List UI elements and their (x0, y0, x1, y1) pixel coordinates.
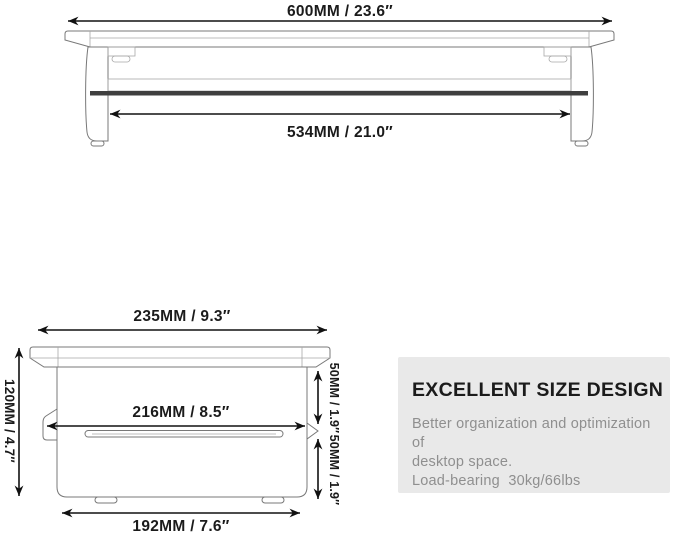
dimension-label-534: 534MM / 21.0″ (287, 124, 393, 141)
front-view-drawing: 600MM / 23.6″ 534MM / 21.0″ (65, 3, 614, 146)
dimension-label-192: 192MM / 7.6″ (132, 518, 229, 535)
front-left-bracket (108, 47, 135, 56)
front-right-foot (575, 141, 588, 146)
dimension-120mm: 120MM / 4.7″ (2, 348, 19, 496)
dimension-label-50-lower: 50MM / 1.9″ (327, 435, 341, 506)
panel-text-line: Better organization and optimization of (412, 415, 656, 453)
panel-body: Better organization and optimization of … (412, 415, 656, 491)
side-right-hook (307, 423, 318, 439)
front-right-bracket-tab (549, 56, 567, 62)
dimension-label-235: 235MM / 9.3″ (133, 308, 230, 325)
dimension-50mm-lower: 50MM / 1.9″ (318, 435, 341, 506)
panel-text-line: Load-bearing 30kg/66lbs (412, 472, 656, 491)
side-left-hook (43, 409, 57, 440)
dimension-534mm: 534MM / 21.0″ (110, 114, 570, 141)
front-top-board (65, 31, 614, 47)
side-body (57, 367, 307, 497)
front-shelf-dark-edge (90, 91, 588, 96)
dimension-label-600: 600MM / 23.6″ (287, 3, 393, 20)
panel-text-line: desktop space. (412, 453, 656, 472)
side-top-board (30, 347, 330, 367)
front-left-bracket-tab (112, 56, 130, 62)
panel-title: EXCELLENT SIZE DESIGN (412, 379, 656, 402)
dimension-label-216: 216MM / 8.5″ (132, 404, 229, 421)
dimension-label-50-upper: 50MM / 1.9″ (327, 363, 341, 434)
dimension-label-120: 120MM / 4.7″ (2, 379, 17, 463)
front-left-foot (91, 141, 104, 146)
side-view-drawing: 235MM / 9.3″ 120MM / 4.7″ (2, 308, 341, 535)
product-dimension-diagram: 600MM / 23.6″ 534MM / 21.0″ (0, 0, 679, 535)
front-shelf (108, 79, 571, 91)
side-right-foot (262, 497, 284, 503)
dimension-216mm: 216MM / 8.5″ (47, 404, 305, 426)
front-right-bracket (544, 47, 571, 56)
dimension-600mm: 600MM / 23.6″ (68, 3, 612, 21)
dimension-192mm: 192MM / 7.6″ (62, 513, 300, 535)
size-design-panel: EXCELLENT SIZE DESIGN Better organizatio… (398, 357, 670, 493)
side-left-foot (95, 497, 117, 503)
dimension-235mm: 235MM / 9.3″ (38, 308, 327, 330)
dimension-50mm-upper: 50MM / 1.9″ (318, 363, 341, 434)
